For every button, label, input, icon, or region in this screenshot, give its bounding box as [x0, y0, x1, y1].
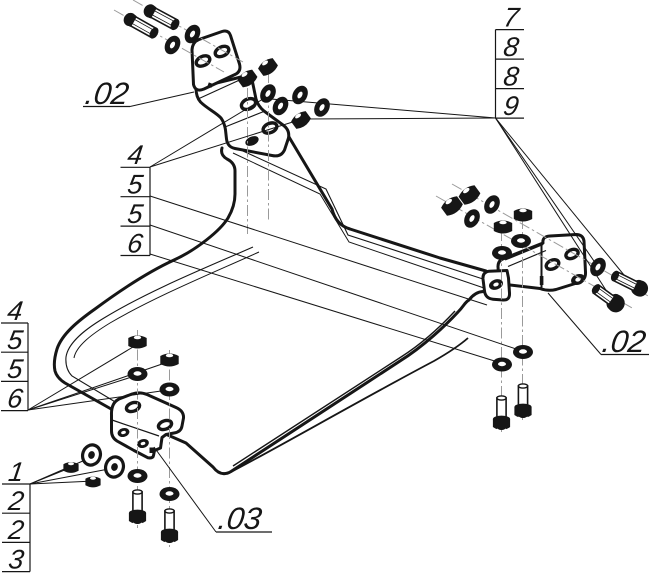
svg-text:.02: .02 — [83, 76, 131, 111]
svg-text:.02: .02 — [600, 324, 648, 359]
svg-text:.03: .03 — [216, 501, 264, 536]
